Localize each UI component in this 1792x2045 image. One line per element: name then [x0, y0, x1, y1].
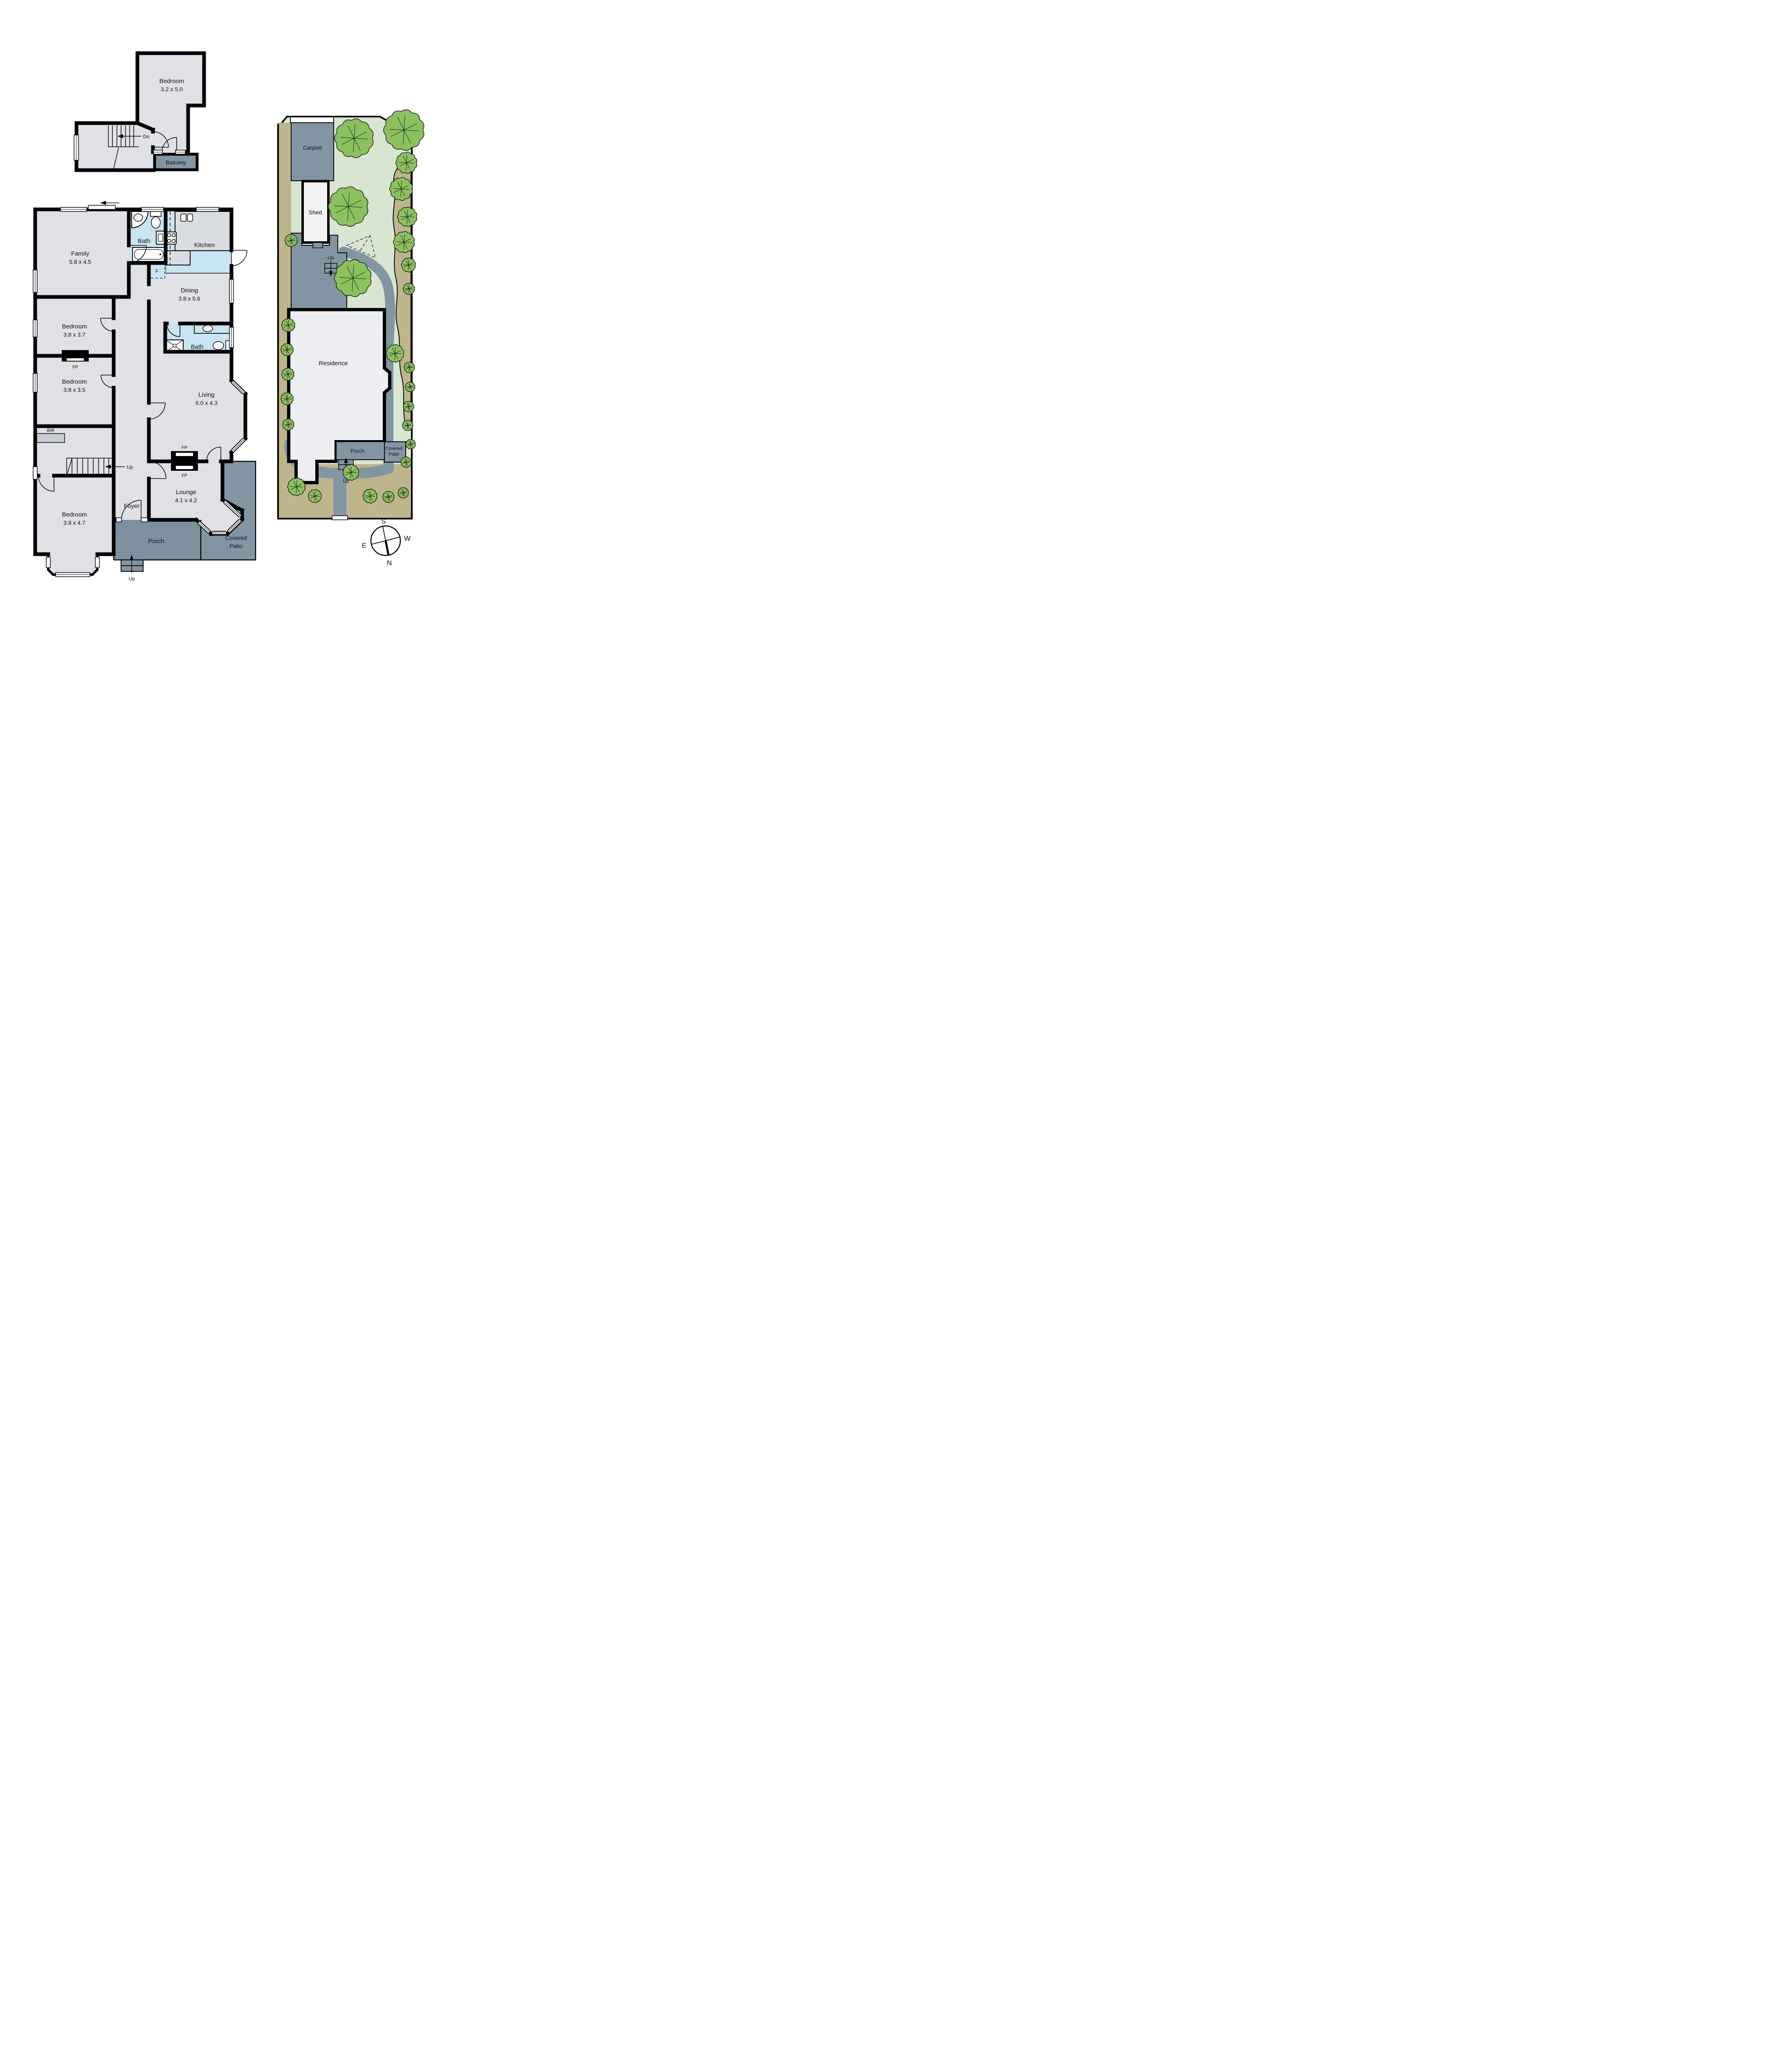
entry-steps [121, 560, 143, 566]
stairs-up-label: Up [127, 464, 133, 470]
bir-label: BIR [47, 428, 54, 433]
tree-icon [398, 488, 409, 498]
compass-north: N [387, 559, 392, 567]
living-name: Living [198, 391, 214, 398]
door-kitchen-external [231, 250, 247, 266]
front-gate [332, 516, 348, 520]
bed2-dims: 3.8 x 3.5 [63, 387, 85, 393]
site-covered-label1: Covered [385, 446, 402, 451]
bir-wardrobe [37, 434, 65, 443]
compass-east: E [362, 542, 366, 549]
tree-icon [406, 439, 415, 449]
bed3-name: Bedroom [62, 511, 87, 518]
floorplan-page: Up Up Carport Shed Residence Porch Cover… [0, 0, 448, 634]
tree-icon [403, 283, 415, 294]
tree-icon [404, 362, 415, 373]
kitchen-counter [165, 251, 190, 265]
carport [291, 123, 334, 181]
toilet-icon [150, 211, 161, 228]
ground-floor-plan: Family 5.8 x 4.5 Bath Kitchen F Dining 3… [33, 201, 256, 582]
toilet-icon [213, 341, 230, 351]
residence-label: Residence [319, 360, 348, 367]
tree-icon [383, 491, 394, 503]
site-covered-label2: Patio [388, 452, 399, 457]
tree-icon [363, 489, 377, 503]
deck-up-label: Up [328, 255, 334, 261]
bed2-name: Bedroom [62, 378, 87, 385]
shed-step [313, 243, 323, 248]
entry-up-label: Up [128, 576, 135, 582]
lounge-dims: 4.1 x 4.2 [175, 497, 197, 503]
tree-icon [282, 319, 295, 332]
carport-gate [290, 117, 334, 123]
entry-steps [121, 566, 143, 571]
bath2-label: Bath [191, 344, 204, 351]
site-plan: Up Up Carport Shed Residence Porch Cover… [278, 110, 424, 520]
fridge-label: F [155, 268, 158, 274]
tree-icon [282, 368, 294, 380]
tree-icon [285, 234, 297, 247]
dn-label: Dn [143, 134, 149, 139]
fp-living-top-label: FP [182, 445, 187, 450]
fp-living-bottom-label: FP [182, 473, 187, 478]
covered-patio-label2: Patio [229, 543, 243, 549]
porch-label: Porch [148, 538, 164, 545]
carport-label: Carport [303, 144, 322, 151]
tree-icon [403, 401, 414, 412]
living-dims: 6.0 x 4.3 [195, 400, 218, 406]
upper-bedroom-name: Bedroom [159, 78, 184, 85]
bed3-dims: 3.8 x 4.7 [63, 519, 85, 526]
tree-icon [281, 344, 293, 356]
site-porch-label: Porch [350, 448, 364, 454]
shed-label: Shed [309, 209, 322, 216]
fireplace-living [171, 451, 198, 471]
dining-dims: 3.8 x 5.6 [178, 295, 200, 302]
compass-west: W [404, 535, 411, 542]
sliding-door [88, 201, 119, 209]
bathtub-icon [132, 247, 165, 261]
bed3-bay-floor [48, 554, 97, 575]
fp-bed-label: FP [72, 365, 78, 370]
tree-icon [405, 382, 415, 392]
compass-south: S [381, 517, 386, 525]
upper-bedroom-dims: 3.2 x 5.0 [161, 86, 183, 92]
foyer-label: Foyer [124, 503, 139, 510]
family-name: Family [71, 250, 90, 257]
lounge-name: Lounge [176, 489, 196, 496]
tree-icon [401, 457, 411, 467]
balcony-label: Balcony [166, 159, 186, 166]
kitchen-label: Kitchen [194, 242, 215, 249]
tree-icon [281, 393, 293, 405]
covered-patio-label1: Covered [225, 535, 247, 541]
stove-icon [166, 232, 176, 244]
shower-icon [156, 231, 165, 244]
family-dims: 5.8 x 4.5 [69, 258, 91, 265]
upper-floor-plan: Bedroom 3.2 x 5.0 Dn Balcony [74, 53, 204, 170]
bed1-name: Bedroom [62, 323, 87, 330]
bed1-dims: 3.8 x 3.7 [63, 331, 85, 338]
dining-name: Dining [181, 287, 198, 294]
tree-icon [283, 419, 294, 430]
compass-icon: S N E W [362, 517, 411, 567]
tree-icon [402, 258, 415, 272]
tree-icon [343, 465, 359, 481]
tree-icon [308, 490, 321, 503]
bath1-label: Bath [138, 238, 150, 245]
tree-icon [402, 420, 413, 431]
